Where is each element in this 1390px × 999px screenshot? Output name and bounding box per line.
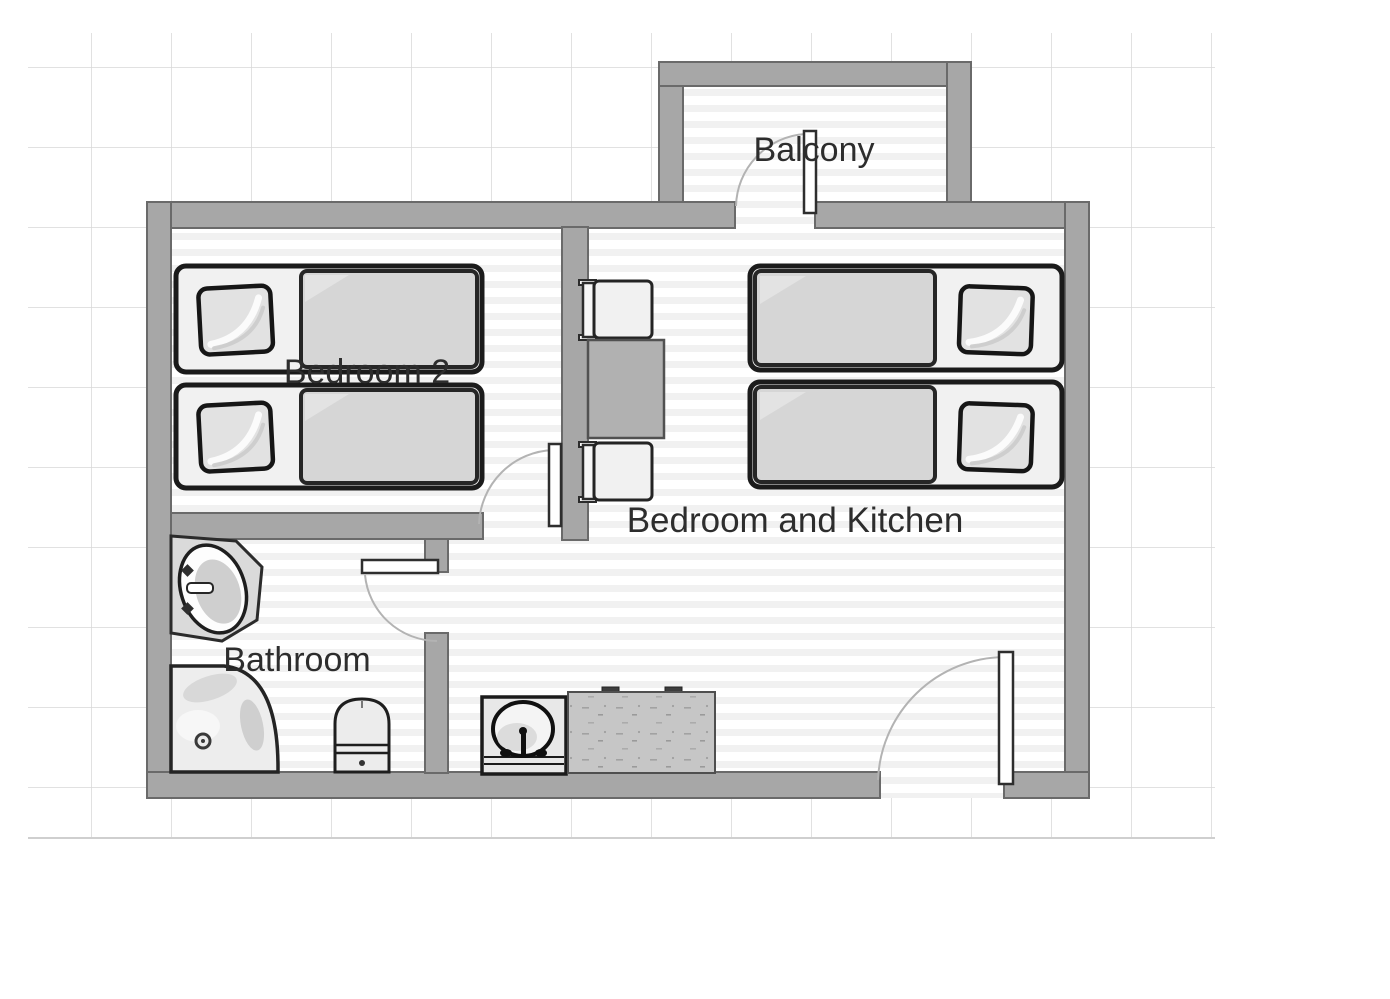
chair-backrest xyxy=(583,445,594,499)
pillow-icon xyxy=(959,403,1033,471)
stove-counter-icon xyxy=(568,687,715,773)
door-leaf xyxy=(362,560,438,573)
bedroom2-bed-2 xyxy=(176,385,482,488)
washbasin-icon xyxy=(169,536,262,642)
room-label-bedroom2: Bedroom 2 xyxy=(284,353,450,391)
wall-top-left xyxy=(147,202,735,228)
chair-icon-top xyxy=(579,280,652,340)
chair-backrest xyxy=(583,283,594,337)
room-label-bedroom-kitchen: Bedroom and Kitchen xyxy=(627,501,964,540)
entrance-doorway-floor xyxy=(880,773,1004,798)
floor-plan-drawing: Balcony Bedroom 2 Bedroom and Kitchen Ba… xyxy=(0,0,1390,999)
wall-bottom-right xyxy=(1004,772,1089,798)
wall-bedroom2-bathroom xyxy=(171,513,483,539)
door-leaf xyxy=(549,444,561,526)
dining-table-icon xyxy=(588,340,664,438)
room-label-bathroom: Bathroom xyxy=(223,641,370,679)
bedroom-kitchen-bed-2 xyxy=(750,382,1062,487)
kitchen-sink-icon xyxy=(482,697,566,774)
door-leaf xyxy=(999,652,1013,784)
faucet-icon xyxy=(187,583,213,593)
basin-shade xyxy=(497,723,537,751)
wall-balcony-top xyxy=(659,62,971,86)
pillow-icon xyxy=(959,286,1033,354)
wall-right xyxy=(1065,202,1089,798)
pillow-icon xyxy=(198,402,273,472)
pillow-icon xyxy=(198,285,273,355)
wall-bottom-left xyxy=(147,772,880,798)
toilet-icon xyxy=(335,699,389,772)
chair-seat xyxy=(594,281,652,338)
wall-left xyxy=(147,202,171,798)
chair-icon-bottom xyxy=(579,442,652,502)
wall-balcony-right xyxy=(947,62,971,203)
chair-seat xyxy=(594,443,652,500)
wall-top-right xyxy=(815,202,1089,228)
wall-bathroom-right-lower xyxy=(425,633,448,773)
floor-plan-page: Balcony Bedroom 2 Bedroom and Kitchen Ba… xyxy=(0,0,1390,999)
bedroom-kitchen-bed-1 xyxy=(750,266,1062,370)
room-label-balcony: Balcony xyxy=(754,131,875,169)
